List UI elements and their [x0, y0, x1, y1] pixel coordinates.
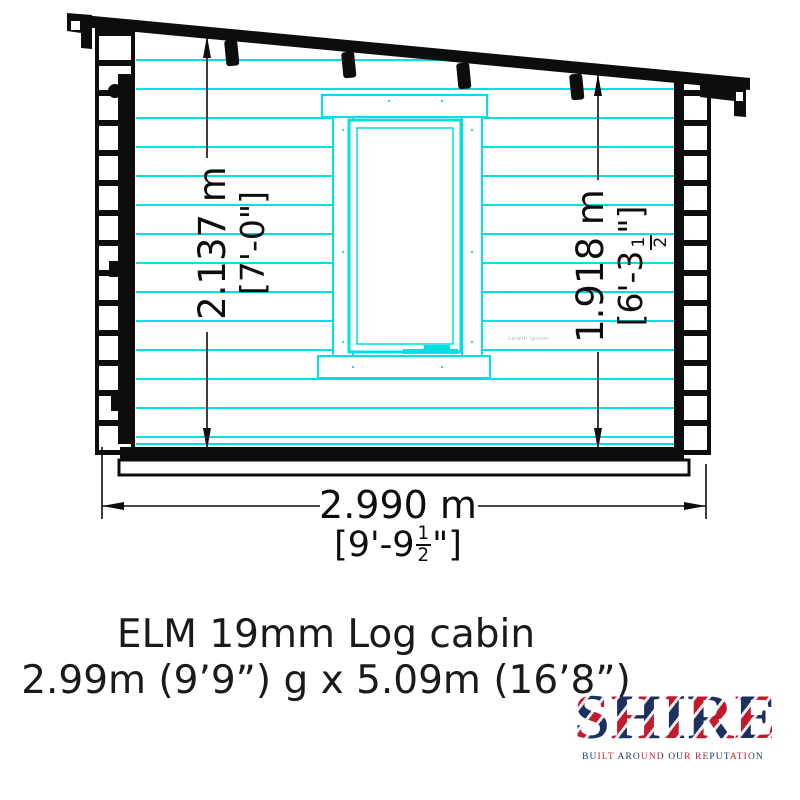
base: [119, 447, 689, 475]
shire-logo-wordmark: SHIRE: [574, 686, 772, 749]
dimension-right-meters: 1.918 m: [572, 189, 609, 343]
window-header-board: [322, 95, 487, 117]
dimension-left-feet: [7'-0"]: [236, 191, 269, 295]
dimension-bottom-meters: 2.990 m: [248, 483, 548, 527]
window-sill-board: [318, 356, 490, 378]
left-corner-joint: [97, 29, 133, 453]
dimension-label-right: 1.918 m [6'-312"]: [575, 106, 667, 426]
floor-bearer: [119, 460, 689, 475]
shire-logo: SHIRE BUILT AROUND OUR REPUTATION: [574, 686, 772, 762]
product-title: ELM 19mm Log cabin: [8, 612, 644, 658]
right-corner-joint: [676, 82, 709, 453]
title-block: ELM 19mm Log cabin 2.99m (9’9”) g x 5.09…: [8, 612, 644, 704]
fraction: 12: [416, 525, 432, 565]
roof-left-overhang: [67, 13, 92, 49]
fraction: 12: [631, 235, 669, 250]
window: [318, 95, 490, 378]
drawing-canvas: 2.137 m [7'-0"] 1.918 m [6'-312"] 2.990 …: [0, 0, 800, 800]
window-sash-outer: [349, 120, 461, 352]
shire-logo-tagline: BUILT AROUND OUR REPUTATION: [574, 752, 772, 762]
product-size: 2.99m (9’9”) g x 5.09m (16’8”): [8, 658, 644, 704]
window-watermark-text: Lorem Ipsum: [508, 336, 549, 342]
window-right-jamb: [462, 117, 482, 356]
dimension-label-left: 2.137 m [7'-0"]: [187, 83, 275, 403]
dimension-bottom-feet: [9'-912"]: [248, 525, 548, 565]
dimension-left-meters: 2.137 m: [194, 166, 231, 320]
left-corner-trim: [118, 74, 133, 444]
dimension-right-feet: [6'-312"]: [614, 206, 669, 327]
base-log: [120, 447, 684, 460]
